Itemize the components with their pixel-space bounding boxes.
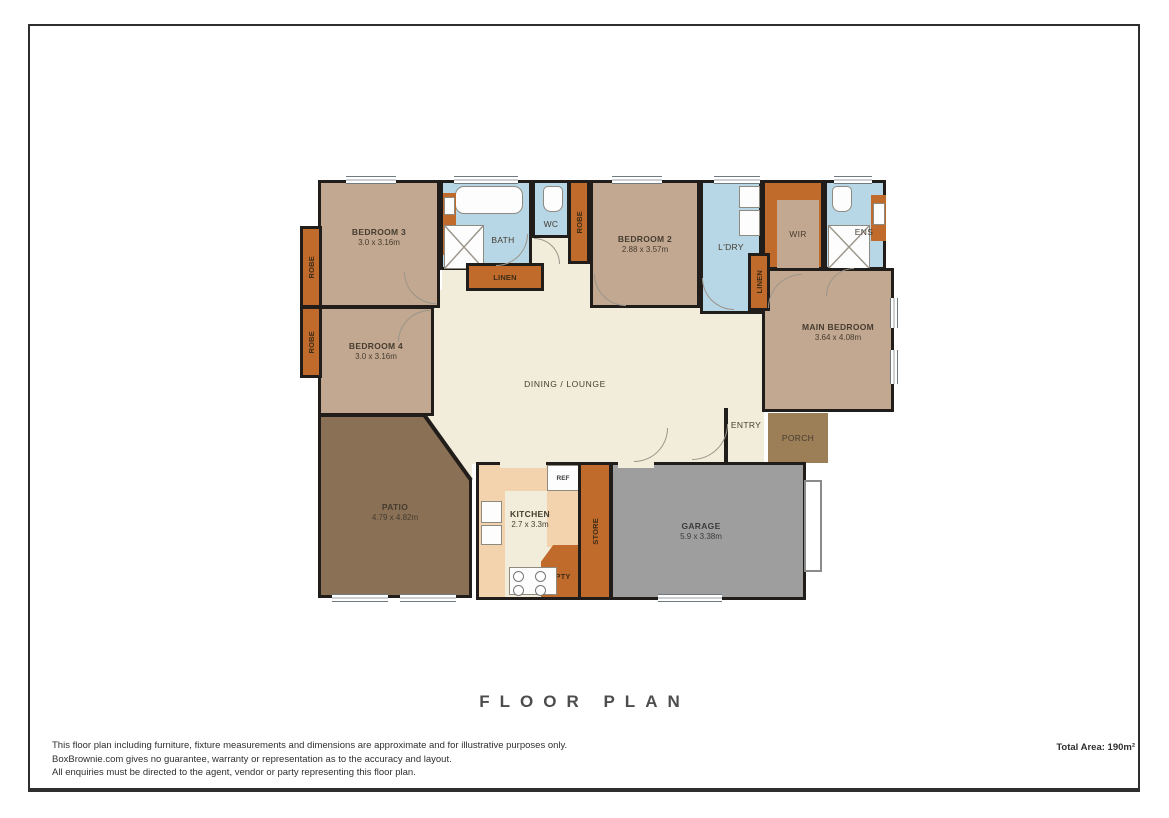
bedroom3-dims: 3.0 x 3.16m xyxy=(358,238,400,248)
ensuite-toilet-icon xyxy=(832,186,852,212)
entry-label: ENTRY xyxy=(731,420,761,430)
linen-main-label: LINEN xyxy=(755,270,764,294)
window xyxy=(400,594,456,602)
ensuite-basin-icon xyxy=(873,203,885,225)
main-bedroom-dims: 3.64 x 4.08m xyxy=(815,333,861,343)
stove-icon xyxy=(509,567,557,595)
linen-hall: LINEN xyxy=(466,263,544,291)
window xyxy=(658,594,722,602)
window xyxy=(612,176,662,184)
disclaimer-line-1: This floor plan including furniture, fix… xyxy=(52,739,567,753)
patio-label: PATIO xyxy=(382,502,408,513)
room-ensuite: ENS xyxy=(824,180,886,270)
pantry-label: PTY xyxy=(555,572,570,581)
bedroom4-dims: 3.0 x 3.16m xyxy=(355,352,397,362)
window xyxy=(454,176,518,184)
porch-label: PORCH xyxy=(782,433,814,444)
laundry-tub-icon xyxy=(739,186,760,208)
floor-plan-page: DINING / LOUNGE PATIO 4.79 x 4.82m BEDRO… xyxy=(0,0,1169,818)
hallway-corner xyxy=(442,267,468,293)
disclaimer-line-2: BoxBrownie.com gives no guarantee, warra… xyxy=(52,753,567,767)
kitchen-label: KITCHEN xyxy=(479,509,581,520)
floor-plan: DINING / LOUNGE PATIO 4.79 x 4.82m BEDRO… xyxy=(300,175,900,607)
kitchen-bench-top xyxy=(479,465,549,491)
fridge-label: REF xyxy=(557,475,570,482)
window xyxy=(714,176,760,184)
store: STORE xyxy=(578,462,612,600)
ensuite-label: ENS xyxy=(841,227,887,238)
dining-lounge-label: DINING / LOUNGE xyxy=(524,379,606,389)
room-garage: GARAGE 5.9 x 3.38m xyxy=(610,462,806,600)
entry-area: ENTRY xyxy=(724,415,768,433)
robe-bedroom3-label: ROBE xyxy=(307,256,316,278)
room-kitchen: REF PTY KITCHEN 2.7 x 3.3m xyxy=(476,462,582,600)
disclaimer-line-3: All enquiries must be directed to the ag… xyxy=(52,766,567,780)
wir-floor: WIR xyxy=(777,200,819,268)
robe-bedroom4-label: ROBE xyxy=(307,331,316,353)
kitchen-dims: 2.7 x 3.3m xyxy=(479,520,581,530)
disclaimer-text: This floor plan including furniture, fix… xyxy=(52,739,567,780)
main-bedroom-label: MAIN BEDROOM xyxy=(802,322,874,333)
bedroom3-label: BEDROOM 3 xyxy=(352,227,406,238)
kitchen-label-block: KITCHEN 2.7 x 3.3m xyxy=(479,509,581,530)
bedroom2-label: BEDROOM 2 xyxy=(618,234,672,245)
toilet-icon xyxy=(543,186,563,212)
window xyxy=(346,176,396,184)
total-area: Total Area: 190m² xyxy=(1056,742,1135,753)
fridge-icon: REF xyxy=(547,465,579,491)
garage-dims: 5.9 x 3.38m xyxy=(680,532,722,542)
wc-label: WC xyxy=(544,219,559,230)
window xyxy=(834,176,872,184)
robe-bedroom3: ROBE xyxy=(300,226,322,308)
garage-door xyxy=(804,480,822,572)
linen-main: LINEN xyxy=(748,253,770,311)
door-opening-kitchen xyxy=(500,460,546,468)
bath-basin-icon xyxy=(444,197,455,215)
robe-bedroom4: ROBE xyxy=(300,306,322,378)
bedroom4-label: BEDROOM 4 xyxy=(349,341,403,352)
room-wc: WC xyxy=(532,180,570,238)
robe-bedroom2: ROBE xyxy=(568,180,590,264)
store-label: STORE xyxy=(591,518,600,545)
robe-bedroom2-label: ROBE xyxy=(575,211,584,233)
garage-label: GARAGE xyxy=(681,521,720,532)
bathtub-icon xyxy=(455,186,523,214)
bedroom2-dims: 2.88 x 3.57m xyxy=(622,245,668,255)
washer-icon xyxy=(739,210,760,236)
laundry-label: L'DRY xyxy=(718,242,744,253)
patio-dims: 4.79 x 4.82m xyxy=(372,513,418,523)
window xyxy=(332,594,388,602)
room-porch: PORCH xyxy=(768,413,828,463)
linen-hall-label: LINEN xyxy=(493,273,517,282)
room-wir: WIR xyxy=(762,180,824,270)
wir-label: WIR xyxy=(789,229,806,240)
window xyxy=(890,350,898,384)
page-title: FLOOR PLAN xyxy=(0,692,1169,712)
window xyxy=(890,298,898,328)
